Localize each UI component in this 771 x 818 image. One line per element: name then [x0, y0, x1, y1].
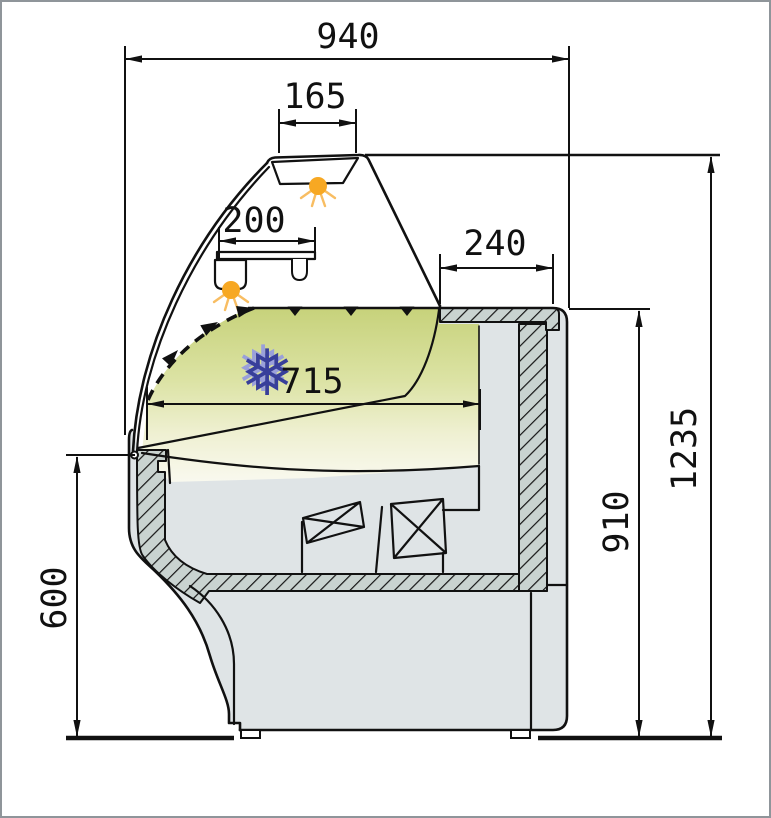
front-foot — [241, 730, 260, 738]
rear-wall-insulation — [519, 324, 547, 591]
dim-label-600: 600 — [35, 566, 75, 629]
dim-label-165: 165 — [283, 77, 346, 117]
dim-label-910: 910 — [597, 490, 637, 553]
dim-label-715: 715 — [280, 362, 343, 402]
dim-label-200: 200 — [222, 201, 285, 241]
shelf-bracket — [292, 259, 307, 280]
technical-drawing-page: ❅ ❅ — [0, 0, 771, 818]
shelf — [217, 252, 315, 259]
dim-label-240: 240 — [463, 224, 526, 264]
dim-label-940: 940 — [316, 17, 379, 57]
diagram-canvas: ❅ ❅ — [2, 2, 771, 818]
rear-foot — [511, 730, 530, 738]
dim-600 — [66, 455, 135, 737]
dim-label-1235: 1235 — [665, 407, 705, 491]
